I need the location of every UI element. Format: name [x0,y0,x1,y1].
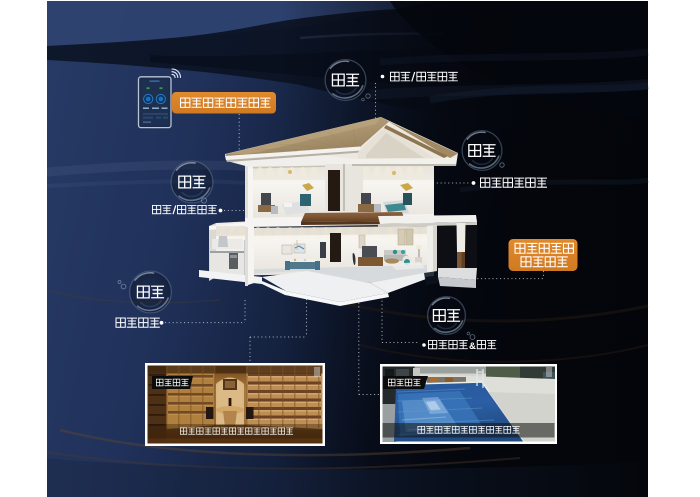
svg-text:&: & [469,341,476,352]
